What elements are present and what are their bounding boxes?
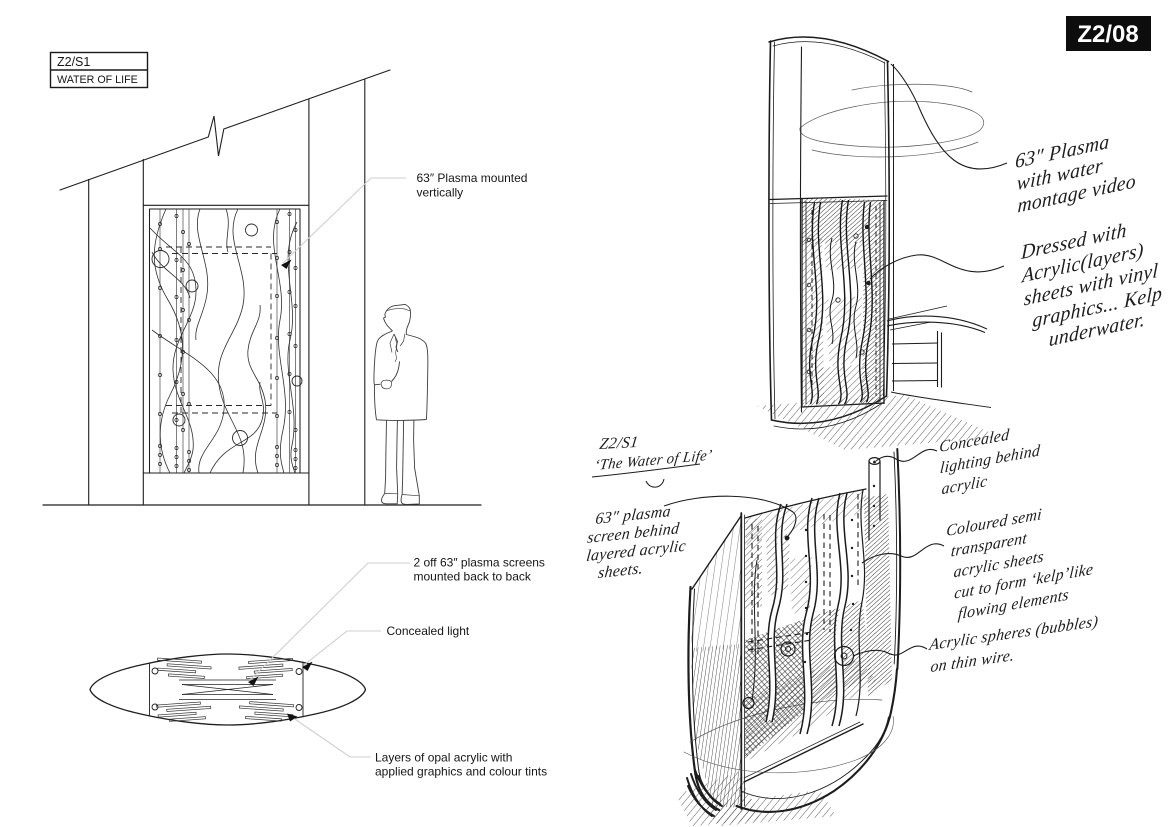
svg-text:2 off 63″ plasma screensmounte: 2 off 63″ plasma screensmounted back to … [414, 556, 545, 584]
svg-text:Z2/08: Z2/08 [1077, 21, 1138, 48]
svg-text:sheets.: sheets. [597, 560, 644, 582]
svg-text:Layers of opal acrylic withapp: Layers of opal acrylic withapplied graph… [375, 751, 547, 779]
svg-text:Z2/S1: Z2/S1 [599, 434, 640, 453]
svg-text:acrylic: acrylic [941, 472, 989, 498]
svg-text:Z2/S1: Z2/S1 [57, 55, 90, 69]
svg-text:63″ Plasma mountedvertically: 63″ Plasma mountedvertically [417, 171, 528, 200]
svg-text:Concealed light: Concealed light [387, 624, 470, 638]
svg-text:WATER OF LIFE: WATER OF LIFE [57, 74, 138, 86]
